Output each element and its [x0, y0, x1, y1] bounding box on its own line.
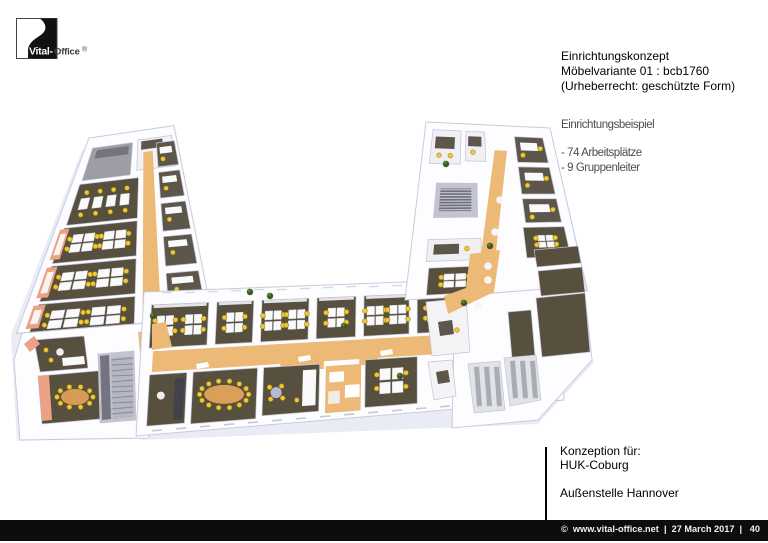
svg-text:Vital-: Vital-	[29, 46, 53, 58]
svg-text:Office: Office	[54, 47, 80, 58]
svg-text:®: ®	[82, 46, 88, 54]
